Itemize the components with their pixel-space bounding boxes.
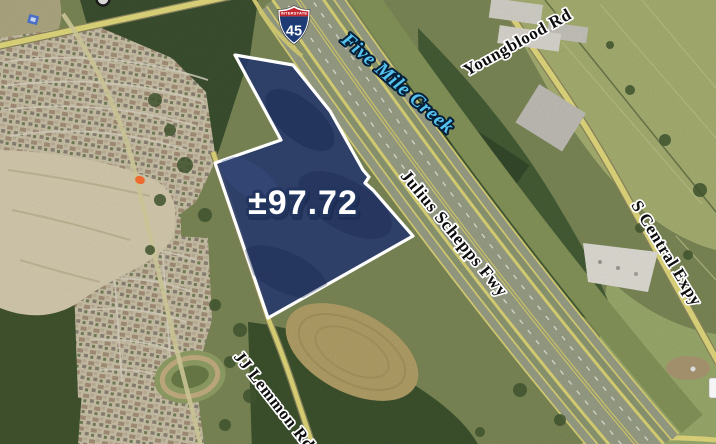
- clipped-map-control: [709, 378, 716, 398]
- shield-number-text: 45: [286, 24, 302, 40]
- clipped-circle-symbol: [97, 0, 110, 6]
- satellite-map[interactable]: INTERSTATE 45 Five Mile Creek Youngblood…: [0, 0, 716, 444]
- parcel-acreage-label: ±97.72: [248, 184, 358, 222]
- shield-banner-text: INTERSTATE: [281, 11, 308, 16]
